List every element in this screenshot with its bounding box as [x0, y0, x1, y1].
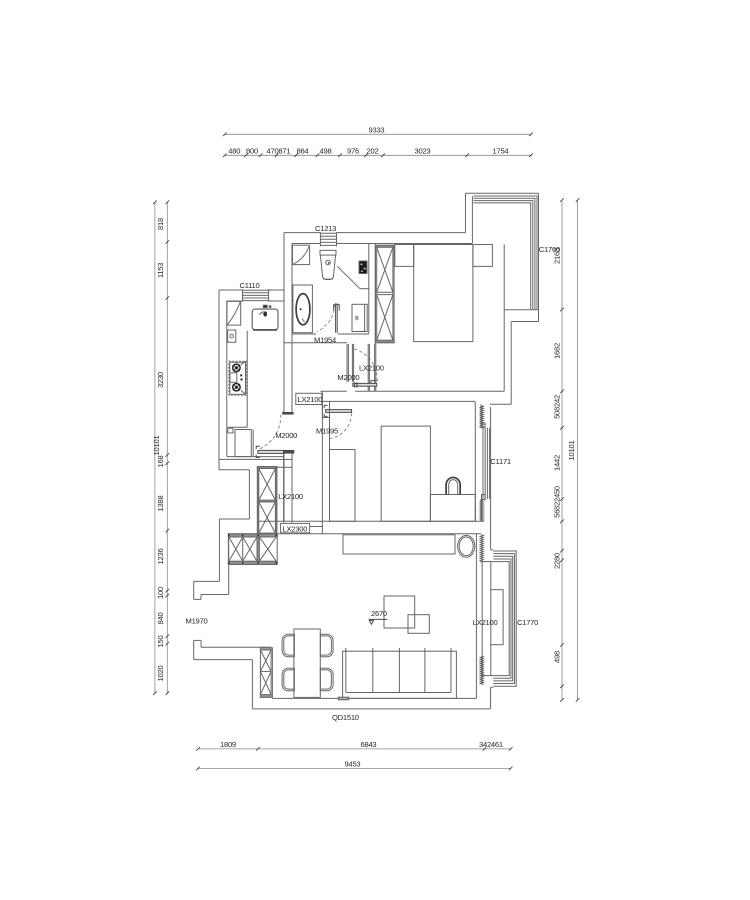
svg-text:470871: 470871: [267, 146, 291, 155]
svg-text:1020: 1020: [156, 666, 165, 682]
svg-text:9453: 9453: [345, 760, 361, 769]
svg-text:2280: 2280: [553, 553, 562, 569]
svg-text:168: 168: [156, 456, 165, 468]
svg-text:LX2100: LX2100: [298, 395, 323, 404]
svg-text:498: 498: [553, 651, 562, 663]
svg-text:2163: 2163: [553, 248, 562, 264]
svg-text:1388: 1388: [156, 496, 165, 512]
svg-text:10101: 10101: [567, 441, 576, 461]
svg-text:150: 150: [156, 636, 165, 648]
svg-text:6843: 6843: [361, 740, 377, 749]
svg-text:LX2300: LX2300: [283, 524, 308, 533]
svg-text:C1171: C1171: [490, 457, 511, 466]
svg-text:M1970: M1970: [186, 617, 208, 626]
svg-text:1809: 1809: [220, 740, 236, 749]
svg-text:LX2100: LX2100: [278, 492, 303, 501]
svg-text:QD1510: QD1510: [332, 713, 359, 722]
svg-text:800: 800: [246, 146, 258, 155]
svg-text:LX2100: LX2100: [473, 618, 498, 627]
svg-text:1236: 1236: [156, 549, 165, 565]
svg-text:C1770: C1770: [517, 618, 538, 627]
svg-text:w: w: [354, 315, 361, 321]
svg-text:1754: 1754: [493, 146, 509, 155]
svg-text:3023: 3023: [415, 146, 431, 155]
svg-text:M1995: M1995: [316, 426, 338, 435]
svg-text:480: 480: [228, 146, 240, 155]
svg-text:M1954: M1954: [314, 336, 336, 345]
svg-text:LX2100: LX2100: [359, 364, 384, 373]
svg-text:9333: 9333: [369, 125, 385, 134]
svg-text:C1110: C1110: [240, 281, 260, 290]
svg-text:C1213: C1213: [315, 224, 336, 233]
svg-text:56822450: 56822450: [553, 486, 562, 518]
svg-text:976: 976: [347, 146, 359, 155]
svg-text:M2000: M2000: [337, 373, 359, 382]
svg-text:10101: 10101: [152, 436, 161, 456]
svg-text:818: 818: [156, 218, 165, 230]
svg-text:498: 498: [320, 146, 332, 155]
svg-text:342461: 342461: [479, 740, 503, 749]
svg-text:100: 100: [156, 587, 165, 599]
svg-text:840: 840: [156, 613, 165, 625]
svg-text:864: 864: [297, 146, 309, 155]
svg-text:1442: 1442: [553, 455, 562, 471]
svg-text:1682: 1682: [553, 343, 562, 359]
svg-text:M2000: M2000: [275, 431, 297, 440]
svg-text:202: 202: [367, 146, 379, 155]
svg-text:3230: 3230: [156, 372, 165, 388]
svg-text:508242: 508242: [553, 395, 562, 419]
svg-text:1153: 1153: [156, 263, 165, 278]
svg-text:2670: 2670: [371, 609, 387, 618]
